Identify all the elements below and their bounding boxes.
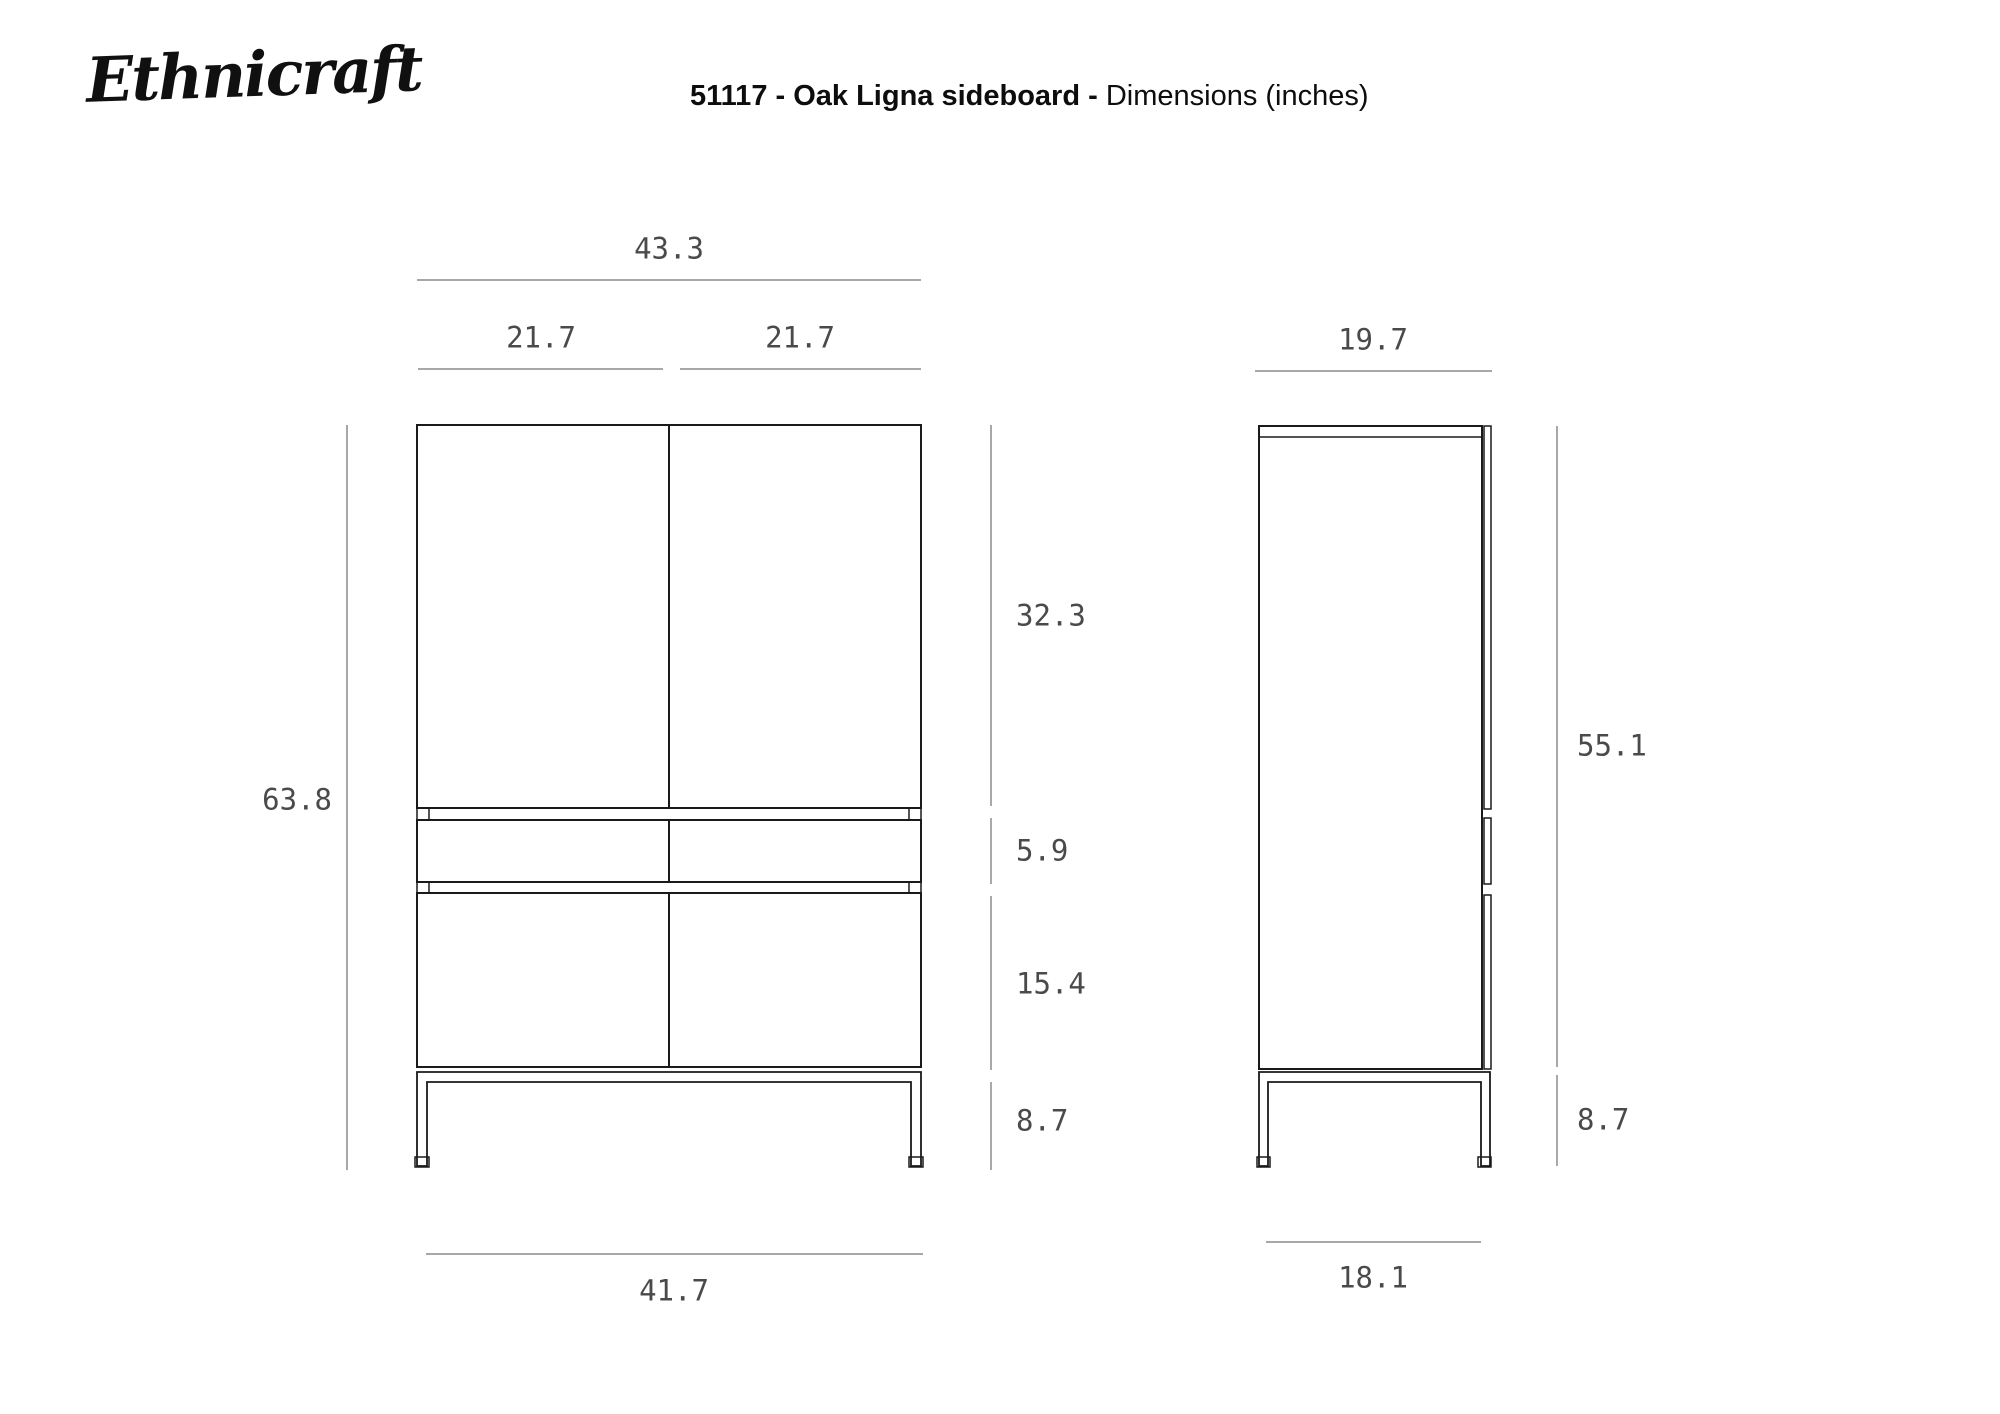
- front-view-drawing: [415, 425, 923, 1167]
- side-body: [1259, 426, 1482, 1069]
- front-top-door-left: [417, 425, 669, 808]
- technical-drawing: [0, 0, 2000, 1414]
- dim-label-front-base-height: 8.7: [1016, 1107, 1068, 1136]
- dim-label-front-total-width: 43.3: [634, 235, 704, 264]
- side-drawer-edge: [1484, 818, 1491, 884]
- front-top-door-right: [669, 425, 921, 808]
- dim-label-front-bottom-door-height: 15.4: [1016, 970, 1086, 999]
- dim-label-side-base-height: 8.7: [1577, 1106, 1629, 1135]
- side-base-frame: [1259, 1072, 1490, 1166]
- dimension-sheet: Ethnicraft 51117 - Oak Ligna sideboard -…: [0, 0, 2000, 1414]
- dim-label-front-top-section-height: 32.3: [1016, 602, 1086, 631]
- front-base-frame: [417, 1072, 921, 1166]
- side-view-drawing: [1257, 426, 1491, 1167]
- dim-label-front-base-width: 41.7: [639, 1277, 709, 1306]
- dim-label-front-left-door-width: 21.7: [506, 324, 576, 353]
- dim-label-side-base-depth: 18.1: [1338, 1264, 1408, 1293]
- dim-label-front-total-height: 63.8: [262, 786, 332, 815]
- dim-label-front-drawer-height: 5.9: [1016, 837, 1068, 866]
- front-drawer-left: [417, 820, 669, 882]
- front-recess-strip-lower: [417, 882, 921, 893]
- front-bottom-door-left: [417, 893, 669, 1067]
- dim-label-side-body-height: 55.1: [1577, 732, 1647, 761]
- front-bottom-door-right: [669, 893, 921, 1067]
- side-bottom-door-edge: [1484, 895, 1491, 1069]
- front-recess-strip-upper: [417, 808, 921, 820]
- front-drawer-right: [669, 820, 921, 882]
- dim-label-front-right-door-width: 21.7: [765, 324, 835, 353]
- side-top-door-edge: [1484, 426, 1491, 809]
- dim-label-side-depth: 19.7: [1338, 326, 1408, 355]
